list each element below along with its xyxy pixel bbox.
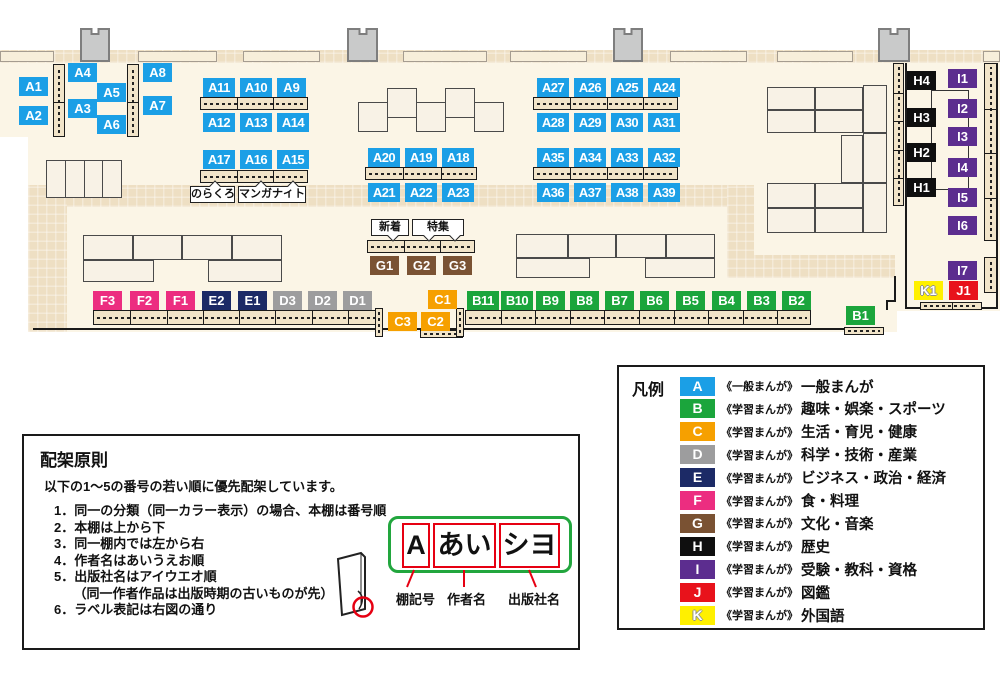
shelf-label-a1: A1 bbox=[19, 77, 48, 96]
shelf-divider bbox=[985, 153, 996, 154]
shelf-divider bbox=[643, 98, 644, 109]
legend-category: 趣味・娯楽・スポーツ bbox=[801, 398, 946, 419]
shelf-divider bbox=[570, 311, 571, 324]
table-cell bbox=[85, 161, 104, 197]
legend-box: 凡例 A《一般まんが》一般まんがB《学習まんが》趣味・娯楽・スポーツC《学習まん… bbox=[617, 365, 985, 630]
legend-chip-k: K bbox=[680, 606, 715, 625]
shelf-divider bbox=[894, 93, 903, 94]
shelf-dash-line bbox=[924, 305, 978, 307]
bookshelf bbox=[533, 167, 678, 180]
shelf-label-i1: I1 bbox=[948, 69, 977, 88]
legend-chip-b: B bbox=[680, 399, 715, 418]
bookshelf bbox=[375, 308, 383, 337]
pillar-notch bbox=[91, 28, 100, 35]
shelf-label-i3: I3 bbox=[948, 127, 977, 146]
shelf-label-g3: G3 bbox=[443, 256, 472, 275]
shelf-label-h1: H1 bbox=[907, 178, 936, 197]
reading-table bbox=[666, 234, 715, 258]
table-cell bbox=[417, 103, 445, 131]
table-cell bbox=[816, 88, 862, 109]
shelf-callout: のらくろ bbox=[190, 186, 235, 203]
bookshelf bbox=[456, 308, 464, 337]
shelf-label-a12: A12 bbox=[203, 113, 235, 132]
shelf-label-i2: I2 bbox=[948, 99, 977, 118]
table-cell bbox=[768, 184, 814, 207]
shelf-label-f1: F1 bbox=[166, 291, 195, 310]
pillar bbox=[613, 28, 643, 62]
shelf-divider bbox=[570, 168, 571, 179]
shelf-label-a32: A32 bbox=[648, 148, 680, 167]
legend-row: H《学習まんが》歴史 bbox=[680, 536, 830, 556]
shelf-label-a28: A28 bbox=[537, 113, 569, 132]
bookshelf bbox=[365, 167, 477, 180]
wall-shelf bbox=[777, 51, 853, 62]
wall-shelf bbox=[138, 51, 217, 62]
shelf-label-a23: A23 bbox=[442, 183, 474, 202]
shelf-label-e2: E2 bbox=[202, 291, 231, 310]
label-diagram-box: あい bbox=[433, 523, 496, 568]
shelf-label-a22: A22 bbox=[405, 183, 437, 202]
legend-row: K《学習まんが》外国語 bbox=[680, 605, 845, 625]
legend-category: 科学・技術・産業 bbox=[801, 444, 917, 465]
legend-category: 図鑑 bbox=[801, 582, 830, 603]
reading-table bbox=[358, 102, 388, 132]
table-cell bbox=[816, 209, 862, 232]
legend-row: G《学習まんが》文化・音楽 bbox=[680, 513, 874, 533]
shelf-label-a24: A24 bbox=[648, 78, 680, 97]
label-diagram-box: シヨ bbox=[499, 523, 560, 568]
table-cell bbox=[103, 161, 121, 197]
reading-table bbox=[133, 235, 182, 260]
shelf-label-a30: A30 bbox=[611, 113, 643, 132]
legend-chip-i: I bbox=[680, 560, 715, 579]
shelf-divider bbox=[894, 150, 903, 151]
wall-shelf bbox=[983, 51, 1000, 62]
shelf-label-g1: G1 bbox=[370, 256, 399, 275]
pillar bbox=[878, 28, 910, 62]
shelf-dash-line bbox=[58, 68, 60, 133]
reading-table bbox=[568, 234, 616, 258]
walkway bbox=[727, 255, 895, 278]
shelf-label-b10: B10 bbox=[501, 291, 533, 310]
shelf-divider bbox=[985, 198, 996, 199]
shelf-divider bbox=[607, 168, 608, 179]
shelf-divider bbox=[348, 311, 349, 324]
shelf-divider bbox=[643, 168, 644, 179]
reading-table bbox=[445, 88, 475, 118]
shelf-label-i5: I5 bbox=[948, 188, 977, 207]
legend-series-label: 《学習まんが》 bbox=[721, 607, 798, 623]
legend-series-label: 《学習まんが》 bbox=[721, 424, 798, 440]
legend-series-label: 《学習まんが》 bbox=[721, 584, 798, 600]
pillar-notch bbox=[624, 28, 633, 35]
legend-chip-e: E bbox=[680, 468, 715, 487]
shelf-label-d3: D3 bbox=[273, 291, 302, 310]
shelf-divider bbox=[167, 311, 168, 324]
table-cell bbox=[47, 161, 66, 197]
shelf-divider bbox=[237, 98, 238, 109]
table-cell bbox=[864, 134, 886, 182]
shelf-dash-line bbox=[371, 246, 471, 248]
reading-table bbox=[841, 135, 863, 183]
shelf-label-a31: A31 bbox=[648, 113, 680, 132]
reading-table bbox=[46, 160, 122, 198]
legend-chip-j: J bbox=[680, 583, 715, 602]
reading-table bbox=[767, 208, 815, 233]
table-cell bbox=[517, 259, 589, 277]
shelf-label-a21: A21 bbox=[368, 183, 400, 202]
shelf-label-f3: F3 bbox=[93, 291, 122, 310]
shelf-label-b9: B9 bbox=[536, 291, 565, 310]
shelf-dash-line bbox=[97, 317, 379, 319]
shelf-divider bbox=[894, 121, 903, 122]
shelf-callout: マンガナイト bbox=[238, 186, 306, 203]
shelf-divider bbox=[777, 311, 778, 324]
reading-table bbox=[474, 102, 504, 132]
shelf-label-a10: A10 bbox=[240, 78, 272, 97]
table-cell bbox=[475, 103, 503, 131]
wall-shelf bbox=[510, 51, 587, 62]
legend-series-label: 《学習まんが》 bbox=[721, 561, 798, 577]
legend-category: 文化・音楽 bbox=[801, 513, 874, 534]
table-cell bbox=[816, 111, 862, 132]
shelf-label-b1: B1 bbox=[846, 306, 875, 325]
reading-table bbox=[208, 260, 282, 282]
shelf-label-a34: A34 bbox=[574, 148, 606, 167]
bookshelf bbox=[533, 97, 678, 110]
legend-category: 歴史 bbox=[801, 536, 830, 557]
table-cell bbox=[864, 86, 886, 132]
shelf-label-a17: A17 bbox=[203, 150, 235, 169]
shelf-divider bbox=[501, 311, 502, 324]
shelf-divider bbox=[128, 102, 138, 103]
bookshelf bbox=[920, 302, 982, 310]
bookshelf bbox=[127, 64, 139, 137]
shelf-dash-line bbox=[204, 103, 304, 105]
shelf-label-j1: J1 bbox=[949, 281, 978, 300]
bookshelf bbox=[367, 240, 475, 253]
reading-table bbox=[863, 85, 887, 133]
shelf-label-a36: A36 bbox=[537, 183, 569, 202]
bookshelf bbox=[53, 64, 65, 137]
shelf-dash-line bbox=[898, 67, 900, 202]
shelf-label-b2: B2 bbox=[782, 291, 811, 310]
shelf-label-f2: F2 bbox=[130, 291, 159, 310]
legend-row: F《学習まんが》食・料理 bbox=[680, 491, 859, 511]
bookshelf bbox=[984, 257, 997, 293]
leader-line-shelf-code bbox=[407, 570, 414, 587]
shelf-divider bbox=[130, 311, 131, 324]
shelf-label-a33: A33 bbox=[611, 148, 643, 167]
legend-category: 生活・育児・健康 bbox=[801, 421, 917, 442]
shelf-label-k1: K1 bbox=[914, 281, 943, 300]
bookshelf bbox=[893, 63, 904, 206]
bookshelf bbox=[844, 327, 884, 335]
shelf-label-a2: A2 bbox=[19, 106, 48, 125]
shelf-label-a16: A16 bbox=[240, 150, 272, 169]
shelf-dash-line bbox=[378, 312, 380, 333]
legend-chip-d: D bbox=[680, 445, 715, 464]
table-cell bbox=[388, 89, 416, 117]
shelf-label-b5: B5 bbox=[676, 291, 705, 310]
shelf-label-a27: A27 bbox=[537, 78, 569, 97]
reading-table bbox=[182, 235, 232, 260]
wall-line bbox=[886, 300, 888, 310]
pillar-notch bbox=[358, 28, 367, 35]
shelf-label-a14: A14 bbox=[277, 113, 309, 132]
label-diagram-caption: 出版社名 bbox=[508, 589, 560, 608]
shelf-label-h2: H2 bbox=[907, 143, 936, 162]
shelf-divider bbox=[607, 98, 608, 109]
shelf-label-a9: A9 bbox=[277, 78, 306, 97]
shelf-dash-line bbox=[204, 176, 304, 178]
table-cell bbox=[816, 184, 862, 207]
legend-chip-c: C bbox=[680, 422, 715, 441]
reading-table bbox=[516, 234, 568, 258]
table-cell bbox=[842, 136, 862, 182]
shelf-divider bbox=[273, 98, 274, 109]
table-cell bbox=[84, 236, 132, 259]
shelf-label-b11: B11 bbox=[467, 291, 499, 310]
reading-table bbox=[815, 183, 863, 208]
legend-row: D《学習まんが》科学・技術・産業 bbox=[680, 445, 917, 465]
label-diagram-caption: 棚記号 bbox=[396, 589, 435, 608]
reading-table bbox=[83, 235, 133, 260]
shelf-label-e1: E1 bbox=[238, 291, 267, 310]
shelf-label-a19: A19 bbox=[405, 148, 437, 167]
shelf-divider bbox=[312, 311, 313, 324]
shelf-label-a6: A6 bbox=[97, 115, 126, 134]
legend-category: 食・料理 bbox=[801, 490, 859, 511]
pillar-notch bbox=[890, 28, 899, 35]
shelf-divider bbox=[952, 303, 953, 309]
wall-shelf bbox=[0, 51, 54, 62]
legend-category: 外国語 bbox=[801, 605, 845, 626]
shelf-label-a38: A38 bbox=[611, 183, 643, 202]
label-diagram-box: A bbox=[402, 523, 430, 568]
legend-category: 受験・教科・資格 bbox=[801, 559, 917, 580]
bookshelf bbox=[93, 310, 383, 325]
legend-row: C《学習まんが》生活・育児・健康 bbox=[680, 422, 917, 442]
shelf-dash-line bbox=[132, 68, 134, 133]
table-cell bbox=[517, 235, 567, 257]
legend-title: 凡例 bbox=[632, 376, 664, 400]
shelf-label-b3: B3 bbox=[747, 291, 776, 310]
label-diagram-caption: 作者名 bbox=[447, 589, 486, 608]
legend-series-label: 《学習まんが》 bbox=[721, 401, 798, 417]
legend-chip-h: H bbox=[680, 537, 715, 556]
shelf-divider bbox=[570, 98, 571, 109]
shelf-divider bbox=[674, 311, 675, 324]
bookshelf bbox=[984, 63, 997, 241]
legend-series-label: 《一般まんが》 bbox=[721, 378, 798, 394]
reading-table bbox=[767, 183, 815, 208]
shelf-dash-line bbox=[459, 312, 461, 333]
shelf-label-c1: C1 bbox=[428, 290, 457, 309]
reading-table bbox=[616, 234, 666, 258]
shelf-label-c3: C3 bbox=[388, 312, 417, 331]
pillar bbox=[347, 28, 378, 62]
bookshelf bbox=[465, 310, 811, 325]
legend-chip-g: G bbox=[680, 514, 715, 533]
leader-line-publisher bbox=[529, 570, 536, 587]
shelf-label-i4: I4 bbox=[948, 158, 977, 177]
principles-intro: 以下の1～5の番号の若い順に優先配架しています。 bbox=[44, 476, 343, 495]
shelf-dash-line bbox=[848, 330, 880, 332]
shelf-label-b7: B7 bbox=[605, 291, 634, 310]
principles-item: 6．ラベル表記は右図の通り bbox=[54, 599, 217, 618]
table-cell bbox=[446, 89, 474, 117]
shelf-label-a39: A39 bbox=[648, 183, 680, 202]
shelf-dash-line bbox=[424, 333, 459, 335]
shelf-dash-line bbox=[990, 67, 992, 237]
shelf-divider bbox=[894, 178, 903, 179]
shelf-label-b8: B8 bbox=[570, 291, 599, 310]
walkway bbox=[28, 185, 67, 332]
shelf-label-a7: A7 bbox=[143, 96, 172, 115]
shelf-label-a11: A11 bbox=[203, 78, 235, 97]
table-cell bbox=[569, 235, 615, 257]
legend-chip-f: F bbox=[680, 491, 715, 510]
shelf-divider bbox=[239, 311, 240, 324]
shelf-label-c2: C2 bbox=[421, 312, 450, 331]
shelf-dash-line bbox=[537, 103, 674, 105]
shelf-callout: 新着 bbox=[371, 219, 409, 236]
legend-category: ビジネス・政治・経済 bbox=[801, 467, 946, 488]
reading-table bbox=[815, 87, 863, 110]
shelf-divider bbox=[985, 109, 996, 110]
table-cell bbox=[768, 111, 814, 132]
table-cell bbox=[134, 236, 181, 259]
shelf-label-b4: B4 bbox=[712, 291, 741, 310]
table-cell bbox=[209, 261, 281, 281]
wall-shelf bbox=[670, 51, 747, 62]
shelf-label-d2: D2 bbox=[308, 291, 337, 310]
table-cell bbox=[617, 235, 665, 257]
shelf-dash-line bbox=[537, 173, 674, 175]
reading-table bbox=[232, 235, 282, 260]
shelf-divider bbox=[275, 311, 276, 324]
reading-table bbox=[387, 88, 417, 118]
shelf-divider bbox=[708, 311, 709, 324]
wall-line bbox=[894, 276, 896, 302]
shelf-label-d1: D1 bbox=[343, 291, 372, 310]
shelf-label-i6: I6 bbox=[948, 216, 977, 235]
shelf-label-a15: A15 bbox=[277, 150, 309, 169]
shelf-dash-line bbox=[469, 317, 807, 319]
shelf-divider bbox=[237, 171, 238, 182]
shelf-label-a5: A5 bbox=[97, 83, 126, 102]
table-cell bbox=[646, 259, 714, 277]
shelf-label-a37: A37 bbox=[574, 183, 606, 202]
shelf-divider bbox=[403, 168, 404, 179]
legend-series-label: 《学習まんが》 bbox=[721, 493, 798, 509]
reading-table bbox=[645, 258, 715, 278]
reading-table bbox=[767, 110, 815, 133]
reading-table bbox=[416, 102, 446, 132]
shelf-label-a13: A13 bbox=[240, 113, 272, 132]
reading-table bbox=[815, 208, 863, 233]
shelf-label-a18: A18 bbox=[442, 148, 474, 167]
reading-table bbox=[863, 183, 887, 233]
table-cell bbox=[768, 209, 814, 232]
principles-title: 配架原則 bbox=[40, 446, 108, 471]
wall-shelf bbox=[243, 51, 320, 62]
legend-row: J《学習まんが》図鑑 bbox=[680, 582, 830, 602]
table-cell bbox=[66, 161, 85, 197]
shelf-label-b6: B6 bbox=[640, 291, 669, 310]
table-cell bbox=[233, 236, 281, 259]
shelf-divider bbox=[639, 311, 640, 324]
table-cell bbox=[864, 184, 886, 232]
shelf-divider bbox=[604, 311, 605, 324]
shelf-divider bbox=[440, 241, 441, 252]
table-cell bbox=[667, 235, 714, 257]
legend-series-label: 《学習まんが》 bbox=[721, 538, 798, 554]
shelf-label-i7: I7 bbox=[948, 261, 977, 280]
shelf-label-a8: A8 bbox=[143, 63, 172, 82]
shelf-label-g2: G2 bbox=[407, 256, 436, 275]
shelf-label-h3: H3 bbox=[907, 108, 936, 127]
shelf-divider bbox=[535, 311, 536, 324]
shelf-label-h4: H4 bbox=[907, 71, 936, 90]
table-cell bbox=[768, 88, 814, 109]
shelf-divider bbox=[273, 171, 274, 182]
shelf-divider bbox=[203, 311, 204, 324]
legend-chip-a: A bbox=[680, 377, 715, 396]
shelf-divider bbox=[743, 311, 744, 324]
legend-row: E《学習まんが》ビジネス・政治・経済 bbox=[680, 468, 946, 488]
legend-category: 一般まんが bbox=[801, 376, 874, 397]
shelf-dash-line bbox=[990, 261, 992, 289]
legend-row: A《一般まんが》一般まんが bbox=[680, 376, 874, 396]
shelf-dash-line bbox=[369, 173, 473, 175]
pillar bbox=[80, 28, 110, 62]
shelf-label-a20: A20 bbox=[368, 148, 400, 167]
table-cell bbox=[359, 103, 387, 131]
reading-table bbox=[815, 110, 863, 133]
shelf-label-a25: A25 bbox=[611, 78, 643, 97]
legend-series-label: 《学習まんが》 bbox=[721, 515, 798, 531]
legend-row: B《学習まんが》趣味・娯楽・スポーツ bbox=[680, 399, 946, 419]
shelf-label-a3: A3 bbox=[68, 99, 97, 118]
legend-series-label: 《学習まんが》 bbox=[721, 470, 798, 486]
reading-table bbox=[863, 133, 887, 183]
shelf-label-a4: A4 bbox=[68, 63, 97, 82]
legend-series-label: 《学習まんが》 bbox=[721, 447, 798, 463]
shelf-divider bbox=[404, 241, 405, 252]
legend-row: I《学習まんが》受験・教科・資格 bbox=[680, 559, 917, 579]
shelf-label-a26: A26 bbox=[574, 78, 606, 97]
bookshelf bbox=[200, 97, 308, 110]
wall-shelf bbox=[403, 51, 487, 62]
table-cell bbox=[84, 261, 153, 281]
library-shelf-map-page: A1A2A4A3A5A6A8A7A11A10A9A12A13A14A17A16A… bbox=[0, 0, 1000, 700]
shelf-divider bbox=[54, 102, 64, 103]
reading-table bbox=[516, 258, 590, 278]
shelf-callout: 特集 bbox=[412, 219, 464, 236]
reading-table bbox=[83, 260, 154, 282]
shelf-label-a29: A29 bbox=[574, 113, 606, 132]
shelf-label-a35: A35 bbox=[537, 148, 569, 167]
table-cell bbox=[183, 236, 231, 259]
reading-table bbox=[767, 87, 815, 110]
shelf-divider bbox=[441, 168, 442, 179]
